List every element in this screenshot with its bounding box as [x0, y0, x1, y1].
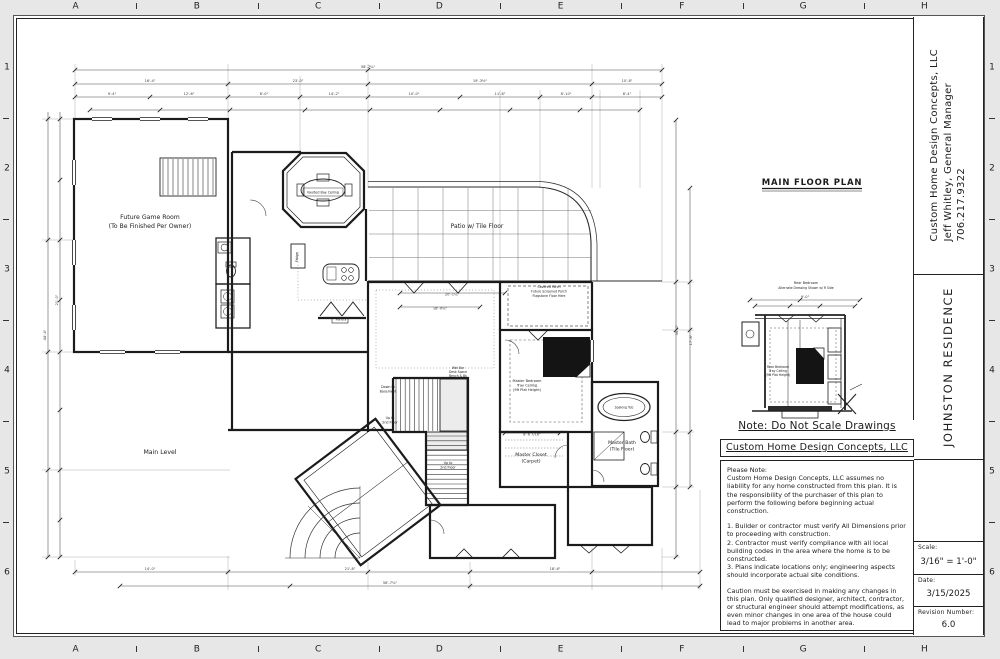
notes-paragraph: 3. Plans indicate locations only; engine…	[727, 563, 907, 579]
plan-label: Tray Ceiling	[516, 384, 537, 388]
drawing-page: ABCDEFGH ABCDEFGH 123456 123456	[0, 0, 1000, 659]
dimension-label: 21'-8"	[345, 567, 356, 571]
dimension-label: 11'-6"	[495, 92, 506, 96]
title-block-scale: Scale: 3/16" = 1'-0"	[914, 542, 983, 575]
dimension-label: 36'-0"	[675, 324, 679, 335]
do-not-scale-note: Note: Do Not Scale Drawings	[720, 420, 914, 439]
dimension-label: 16'-4"	[145, 79, 156, 83]
date-label: Date:	[918, 577, 935, 584]
plan-label: Basement	[380, 390, 397, 394]
date-value: 3/15/2025	[926, 589, 970, 599]
title-block: Custom Home Design Concepts, LLC Jeff Wh…	[913, 17, 984, 635]
notes-panel: Note: Do Not Scale Drawings Custom Home …	[720, 420, 914, 631]
dimension-label: 18'-0¾"	[433, 307, 448, 311]
plan-label: Down to	[381, 385, 395, 389]
dimension-label: 10'-8"	[622, 79, 633, 83]
plan-label: Pantry	[336, 318, 347, 322]
dimension-label: 9'-0"	[801, 295, 810, 299]
notes-paragraph: Custom Home Design Concepts, LLC assumes…	[727, 474, 907, 515]
plan-label: 2nd Floor	[382, 421, 398, 425]
plan-label: 2nd Floor	[440, 466, 456, 470]
stair-landing	[440, 379, 467, 431]
fixtures	[160, 157, 657, 475]
notes-body: Please Note:Custom Home Design Concepts,…	[720, 460, 914, 631]
plan-label: (Tile Floor)	[610, 447, 635, 453]
revision-label: Revision Number:	[918, 609, 974, 616]
plan-label: MAIN FLOOR PLAN	[762, 178, 863, 188]
scale-label: Scale:	[918, 544, 937, 551]
plan-label: (9ft Plat Height)	[513, 388, 542, 392]
dimension-label: 8'-6 7/16"	[523, 433, 541, 437]
company-name: Custom Home Design Concepts, LLC	[928, 49, 942, 242]
dimension-label: 58'-7¾"	[361, 65, 376, 69]
dimension-label: 20'-1¼"	[445, 293, 460, 297]
plan-label: Flagstone Floor Here	[532, 294, 565, 298]
manager-name: Jeff Whitley, General Manager	[942, 49, 956, 242]
plan-label: Up to	[444, 461, 453, 465]
title-block-blank	[914, 460, 983, 542]
dimension-label: 18'-6"	[550, 567, 561, 571]
dimension-label: 14'-0"	[145, 567, 156, 571]
dimension-label: 8'-0"	[260, 92, 269, 96]
plan-label: Master Closet	[515, 452, 547, 458]
plan-label: Vaulted Bay Ceiling	[307, 191, 339, 195]
dimension-label: 6'-10"	[561, 92, 572, 96]
notes-paragraph: 2. Contractor must verify compliance wit…	[727, 539, 907, 564]
revision-value: 6.0	[942, 620, 956, 630]
notes-company-header: Custom Home Design Concepts, LLC	[720, 439, 914, 457]
garage	[296, 419, 441, 565]
notes-paragraph: Please Note:	[727, 466, 907, 474]
project-title: JOHNSTON RESIDENCE	[942, 287, 956, 447]
plan-label: Soaking Tub	[615, 406, 634, 410]
plan-label: (9ft Plat Height)	[766, 373, 791, 377]
patio-boundary	[368, 182, 662, 282]
driveway-arcs	[285, 486, 360, 558]
plan-label: Alternate Dressing Shown w/ R Side	[778, 286, 834, 290]
dimension-label: 44'-4"	[43, 329, 47, 340]
notes-paragraph: Caution must be exercised in making any …	[727, 587, 907, 628]
dimension-label: 10'-0"	[409, 92, 420, 96]
plan-label: Covered Porch	[537, 285, 560, 289]
dimension-label: 17'-8"	[689, 334, 693, 345]
scale-value: 3/16" = 1'-0"	[920, 557, 976, 567]
title-block-date: Date: 3/15/2025	[914, 575, 983, 607]
stair-hatching	[163, 159, 467, 498]
dimension-label: 21'-0"	[55, 294, 59, 305]
plan-label: Bench & Bk	[449, 374, 467, 378]
plan-label: Future Screened Porch	[531, 290, 567, 294]
plan-label: Rear Bedroom	[794, 281, 819, 285]
dimension-label: 8'-4"	[623, 92, 632, 96]
plan-title-underline	[762, 189, 862, 192]
inset-detail	[742, 315, 862, 418]
plan-label: Master Bedroom	[513, 379, 542, 383]
bed-master	[543, 337, 590, 377]
title-block-revision: Revision Number: 6.0	[914, 607, 983, 635]
dimension-label: 12'-6"	[184, 92, 195, 96]
plan-label: (Carpet)	[521, 459, 540, 465]
title-block-project: JOHNSTON RESIDENCE	[914, 275, 983, 460]
patio-tile-grid	[369, 188, 591, 280]
plan-label: Main Level	[143, 449, 176, 456]
plan-label: Patio w/ Tile Floor	[451, 223, 504, 230]
plan-label: Fridge	[295, 252, 299, 262]
extension-lines	[42, 64, 700, 590]
plan-label: Up to	[386, 416, 395, 420]
notes-paragraph: 1. Builder or contractor must verify All…	[727, 522, 907, 538]
dimension-label: 19'-3½"	[473, 79, 488, 83]
plan-label: Future Game Room	[120, 214, 180, 221]
dimension-label: 14'-2"	[329, 92, 340, 96]
plan-label: Master Bath	[608, 440, 636, 446]
dimension-label: 58'-7¾"	[383, 581, 398, 585]
dimension-labels: 58'-7¾"16'-4"23'-0"19'-3½"10'-8"9'-4"12'…	[43, 65, 810, 585]
plan-label: (To Be Finished Per Owner)	[109, 223, 192, 230]
dimension-label: 23'-0"	[293, 79, 304, 83]
title-block-contact: Custom Home Design Concepts, LLC Jeff Wh…	[914, 17, 983, 275]
phone-number: 706.217.9322	[955, 49, 969, 242]
dimension-label: 9'-4"	[108, 92, 117, 96]
